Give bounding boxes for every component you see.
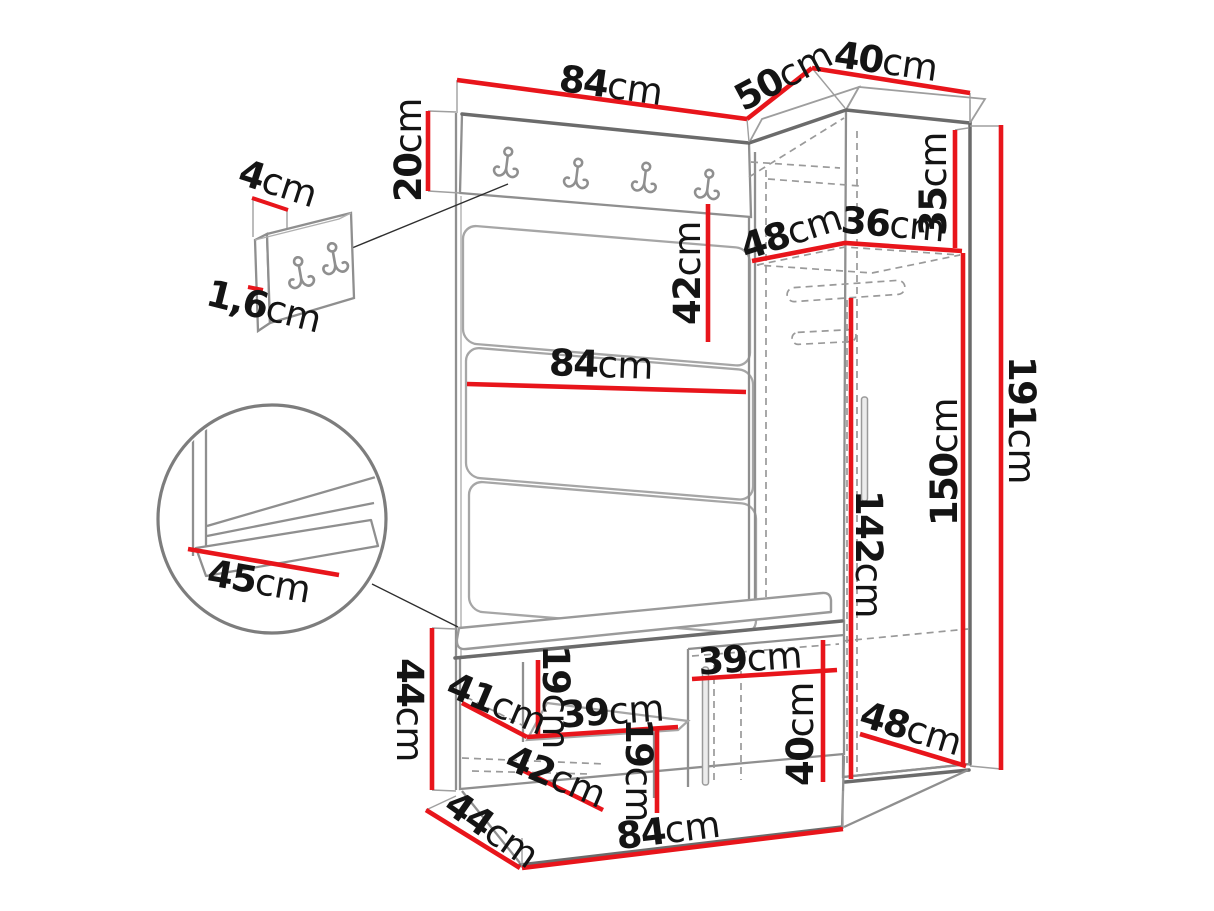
dim-label-top-compartment: 35cm: [912, 132, 955, 236]
wardrobe-door-handle: [862, 397, 868, 501]
bench-door-handle: [703, 667, 709, 785]
dim-label-wardrobe-width: 40cm: [832, 32, 941, 89]
dimension-diagram: 84cm 50cm 40cm 20cm 4cm 1,6cm 42cm 84cm …: [0, 0, 1214, 911]
dim-label-lower-opening: 19cm: [618, 718, 661, 822]
dim-label-interior-height: 150cm: [923, 398, 966, 526]
dim-label-rail-height: 142cm: [848, 490, 891, 618]
dim-label-row-height: 42cm: [666, 221, 709, 325]
dim-label-panel-width: 84cm: [548, 341, 653, 388]
dim-label-door-height: 40cm: [779, 682, 822, 786]
diagram-canvas: 84cm 50cm 40cm 20cm 4cm 1,6cm 42cm 84cm …: [0, 0, 1214, 911]
dim-label-bench-height: 44cm: [389, 658, 432, 762]
dim-label-total-height: 191cm: [1001, 356, 1044, 484]
dim-label-door-width: 39cm: [697, 633, 804, 683]
dim-label-top-width: 84cm: [557, 56, 666, 113]
dim-label-hook-board-height: 20cm: [387, 98, 430, 202]
seat-detail-leader-line: [372, 584, 458, 627]
